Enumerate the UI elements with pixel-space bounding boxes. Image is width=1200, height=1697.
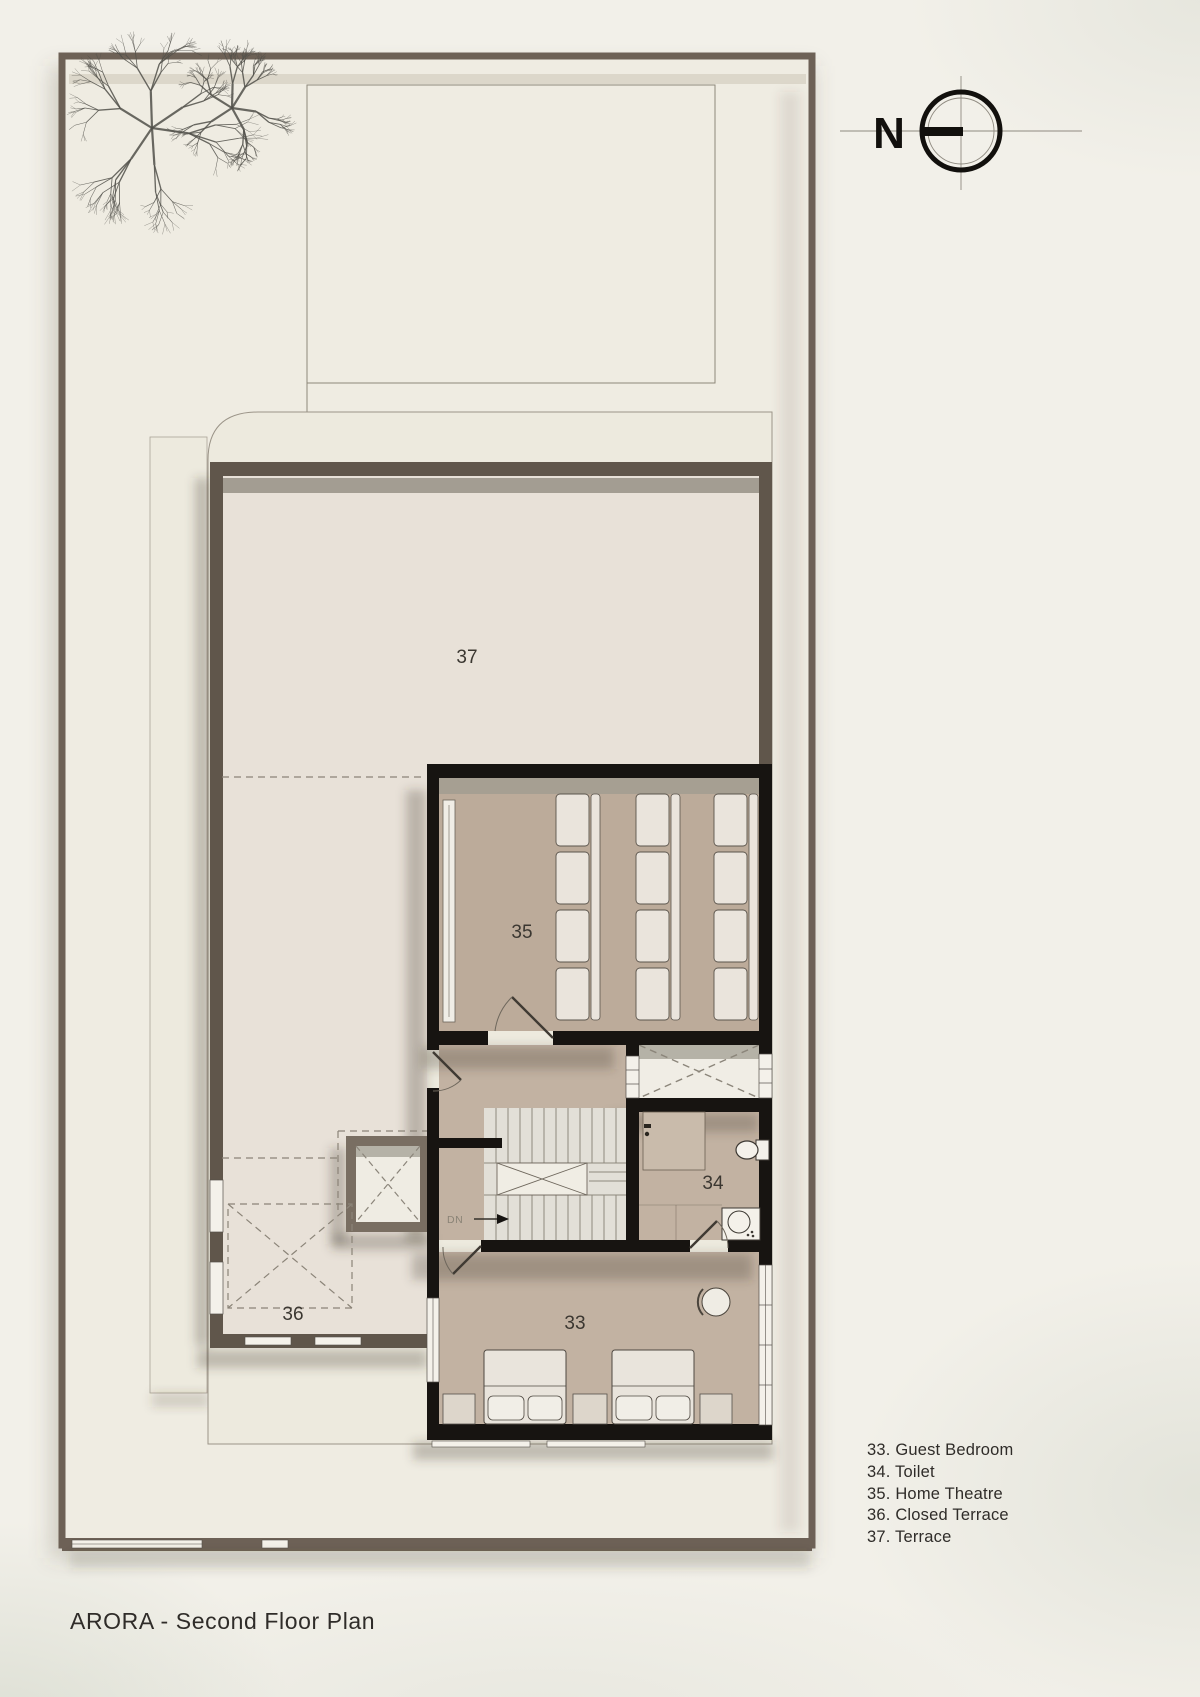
void-shaft xyxy=(639,1045,759,1098)
legend-item: 33. Guest Bedroom xyxy=(867,1440,1013,1462)
room-label-closed-terrace: 36 xyxy=(282,1304,303,1325)
lift-shaft xyxy=(346,1136,430,1232)
floor-plan-page: N xyxy=(0,0,1200,1697)
legend-item: 35. Home Theatre xyxy=(867,1484,1013,1506)
lift-shade xyxy=(356,1146,420,1157)
legend-item: 34. Toilet xyxy=(867,1462,1013,1484)
nightstand xyxy=(443,1394,475,1424)
wall-right-upper xyxy=(759,462,772,770)
legend-item: 36. Closed Terrace xyxy=(867,1505,1013,1527)
nightstand xyxy=(573,1394,607,1424)
room-label-terrace: 37 xyxy=(456,647,477,668)
shower-area xyxy=(643,1112,705,1170)
room-label-home-theatre: 35 xyxy=(511,922,532,943)
wall-top xyxy=(210,462,772,476)
terrace-parapet-shade xyxy=(222,478,759,493)
legend-item: 37. Terrace xyxy=(867,1527,1013,1549)
nightstand xyxy=(700,1394,732,1424)
room-label-guest-bedroom: 33 xyxy=(564,1313,585,1334)
void-window xyxy=(626,1056,639,1098)
north-needle xyxy=(921,127,963,136)
wc-icon xyxy=(736,1140,769,1160)
void-shade xyxy=(639,1045,759,1059)
bedroom-left-window xyxy=(427,1298,439,1382)
shower-head-icon xyxy=(644,1124,651,1128)
washbasin-icon xyxy=(722,1208,760,1240)
toilet-window xyxy=(759,1054,772,1098)
stair-dn-label: DN xyxy=(447,1214,463,1226)
room-label-toilet: 34 xyxy=(702,1173,724,1194)
bedroom-right-window xyxy=(759,1265,772,1425)
side-yard-shadow xyxy=(152,1393,209,1407)
site-top-inner-band xyxy=(69,74,806,84)
bed xyxy=(612,1350,694,1424)
site-right-inner-shadow xyxy=(780,92,800,1532)
bed xyxy=(484,1350,566,1424)
shower-control-icon xyxy=(645,1132,649,1136)
north-label: N xyxy=(873,109,905,158)
plan-title: ARORA - Second Floor Plan xyxy=(70,1608,375,1635)
legend: 33. Guest Bedroom 34. Toilet 35. Home Th… xyxy=(867,1440,1013,1549)
home-theatre-wall-shade xyxy=(439,778,759,794)
floor-plan-drawing: N xyxy=(0,0,1200,1697)
north-compass: N xyxy=(840,76,1082,190)
site-bottom-outer-shadow xyxy=(70,1552,810,1568)
